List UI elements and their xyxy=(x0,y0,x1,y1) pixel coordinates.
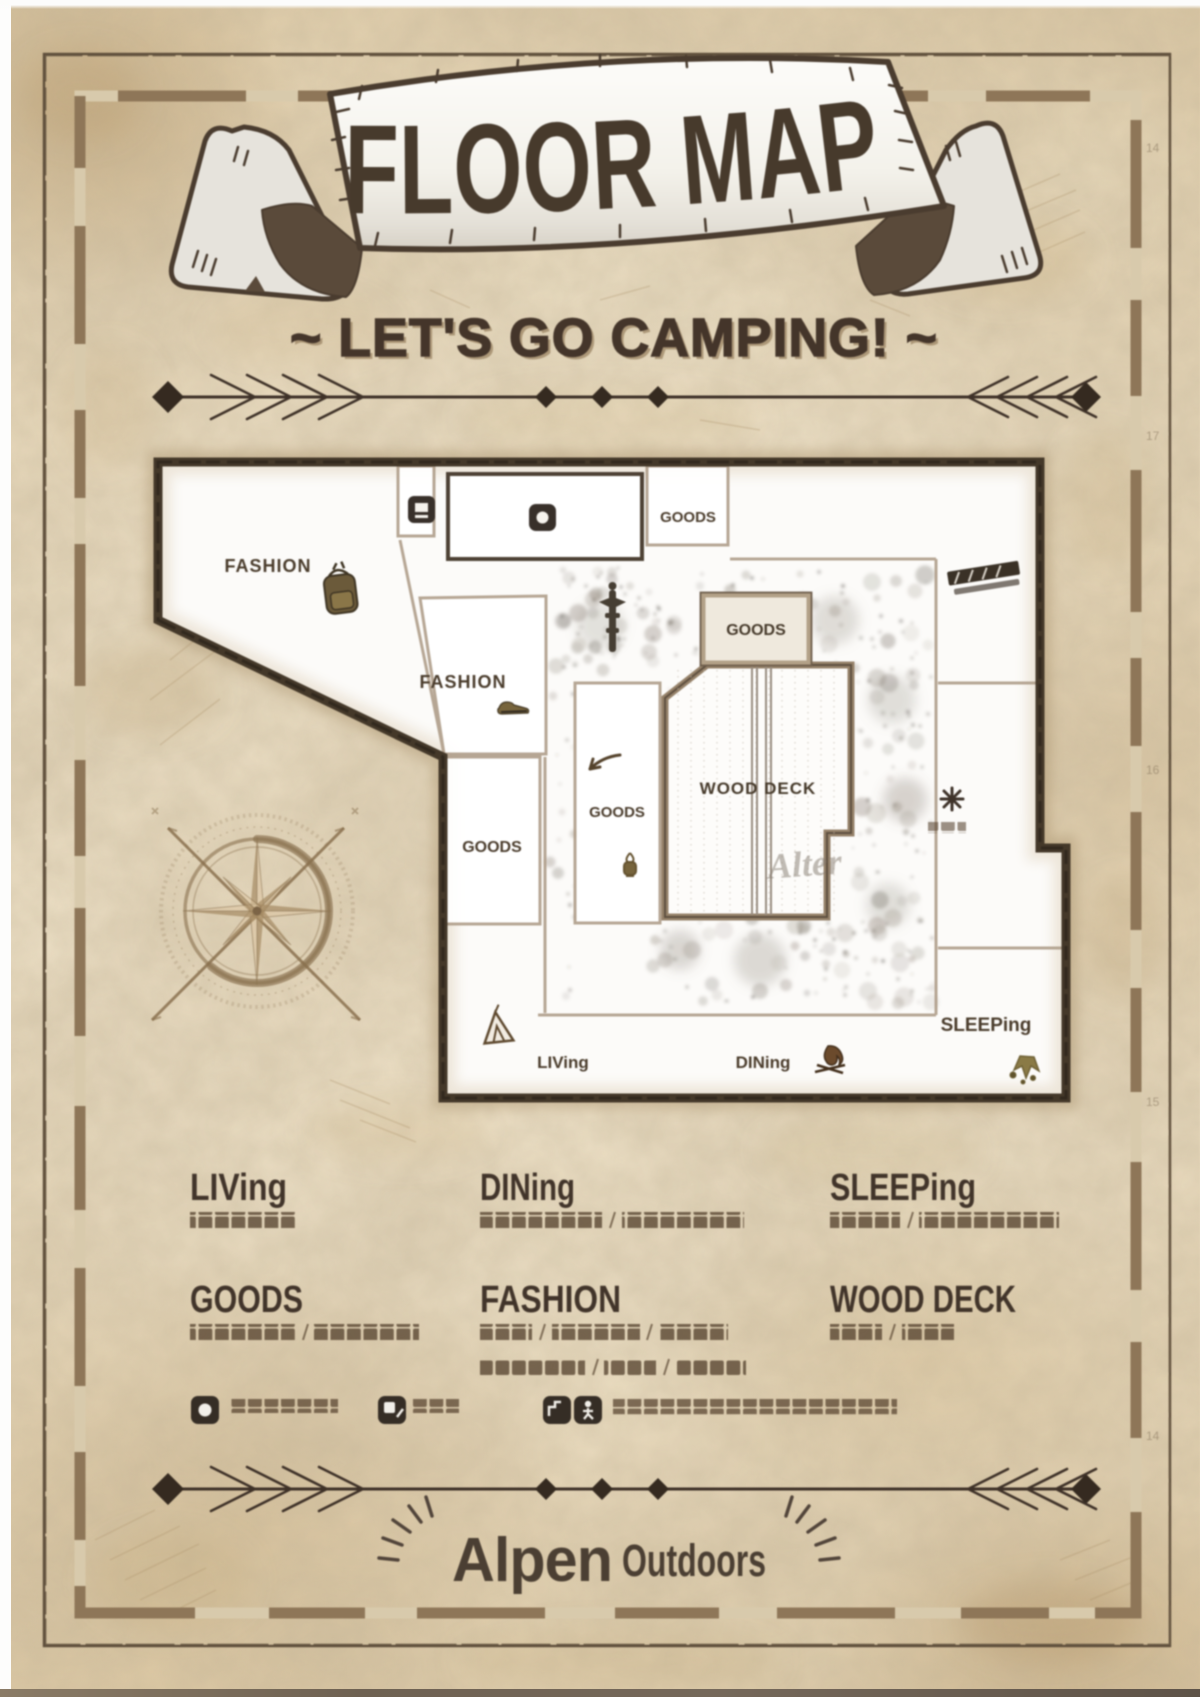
svg-text:FASHION: FASHION xyxy=(419,672,506,692)
svg-text:GOODS: GOODS xyxy=(660,509,716,526)
svg-text:Alpen: Alpen xyxy=(452,1526,612,1595)
svg-text:16: 16 xyxy=(1146,763,1160,777)
svg-text:FASHION: FASHION xyxy=(224,556,311,576)
svg-text:LIVing: LIVing xyxy=(537,1053,589,1072)
svg-text:FASHION: FASHION xyxy=(480,1279,621,1321)
svg-text:SLEEPing: SLEEPing xyxy=(941,1015,1032,1036)
svg-text:15: 15 xyxy=(1146,1095,1160,1109)
svg-text:Alter: Alter xyxy=(764,841,844,886)
svg-text:GOODS: GOODS xyxy=(190,1279,303,1321)
svg-text:GOODS: GOODS xyxy=(726,622,786,639)
svg-text:14: 14 xyxy=(1146,141,1160,155)
svg-text:14: 14 xyxy=(1146,1429,1160,1443)
svg-text:LIVing: LIVing xyxy=(190,1167,287,1209)
svg-text:SLEEPing: SLEEPing xyxy=(830,1167,976,1209)
svg-text:WOOD DECK: WOOD DECK xyxy=(700,779,817,798)
svg-text:Outdoors: Outdoors xyxy=(622,1535,766,1586)
svg-text:DINing: DINing xyxy=(736,1053,791,1072)
svg-text:WOOD DECK: WOOD DECK xyxy=(830,1279,1016,1321)
svg-text:GOODS: GOODS xyxy=(462,839,522,856)
svg-text:~ LET'S GO CAMPING! ~: ~ LET'S GO CAMPING! ~ xyxy=(290,308,938,368)
svg-text:GOODS: GOODS xyxy=(589,804,645,821)
svg-text:DINing: DINing xyxy=(480,1167,575,1209)
svg-text:17: 17 xyxy=(1146,429,1160,443)
